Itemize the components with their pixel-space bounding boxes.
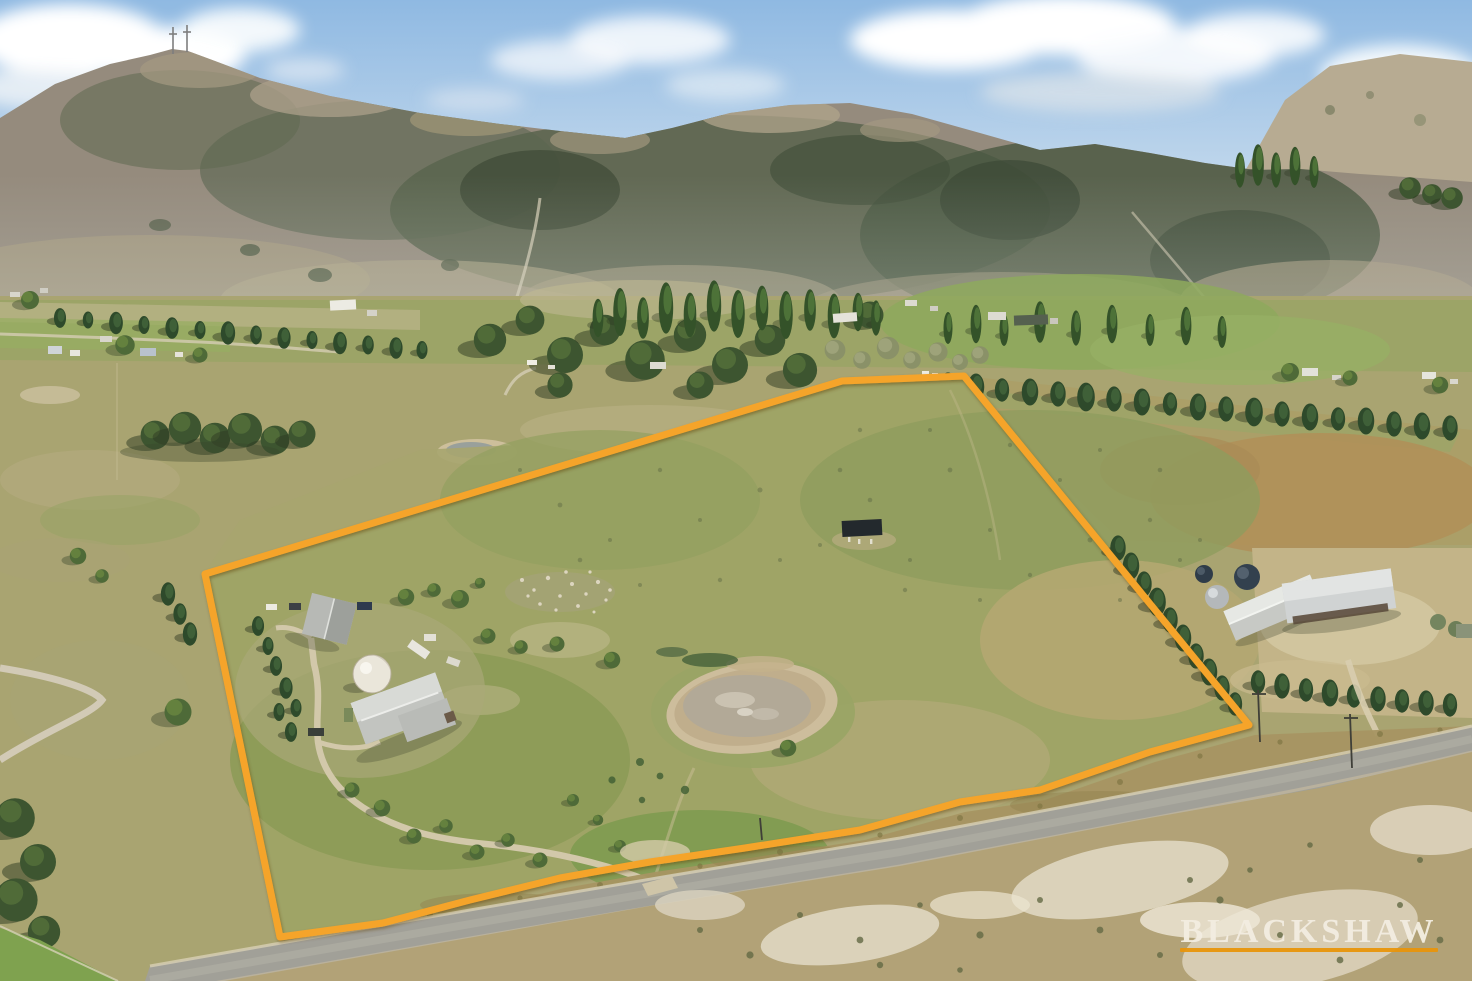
aerial-photo: BLACKSHAW bbox=[0, 0, 1472, 981]
watermark: BLACKSHAW bbox=[1180, 913, 1438, 952]
watermark-text: BLACKSHAW bbox=[1180, 913, 1437, 950]
watermark-underline bbox=[1180, 948, 1438, 952]
